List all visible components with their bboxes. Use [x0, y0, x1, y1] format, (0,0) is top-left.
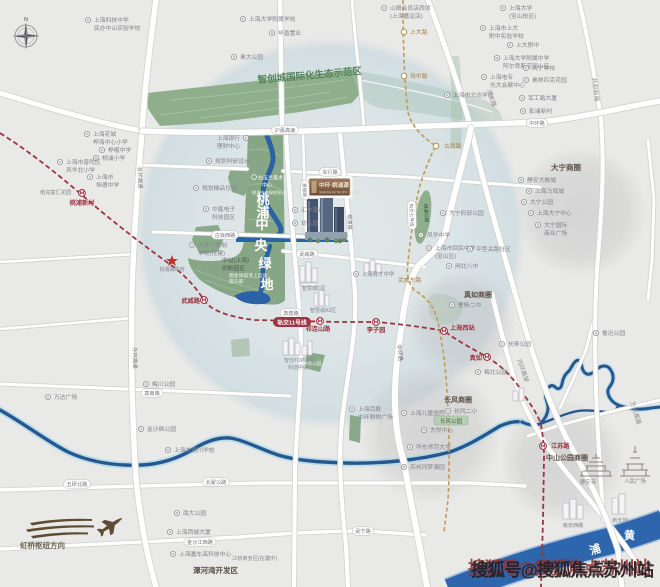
svg-text:上海育才中学: 上海育才中学: [362, 270, 395, 278]
svg-text:科技园区: 科技园区: [212, 213, 235, 221]
svg-text:N: N: [24, 17, 28, 23]
svg-text:附中实验学校: 附中实验学校: [489, 32, 524, 40]
svg-text:北翟公路: 北翟公路: [206, 478, 228, 486]
svg-text:鲁迅公园: 鲁迅公园: [602, 329, 625, 337]
svg-text:汇丰银行: 汇丰银行: [301, 206, 324, 214]
svg-text:江苏路: 江苏路: [551, 442, 570, 450]
svg-text:风华中学: 风华中学: [427, 231, 450, 239]
svg-text:彭浦新村: 彭浦新村: [529, 107, 552, 115]
svg-text:真如: 真如: [470, 354, 482, 362]
svg-text:民办中山实验学校: 民办中山实验学校: [94, 24, 141, 32]
svg-text:武威路: 武威路: [299, 250, 315, 258]
svg-text:新天地: 新天地: [612, 516, 628, 524]
svg-text:上海西站: 上海西站: [450, 324, 476, 332]
svg-text:大宁府邸公园: 大宁府邸公园: [449, 209, 484, 217]
svg-text:上海大学附属中学: 上海大学附属中学: [503, 54, 550, 62]
svg-text:大宁学校: 大宁学校: [532, 64, 555, 72]
svg-text:军工路大厦: 军工路大厦: [528, 94, 557, 102]
svg-text:恒德中学: 恒德中学: [96, 181, 119, 189]
svg-text:敦煌路: 敦煌路: [283, 309, 299, 317]
svg-text:桦海中心小学: 桦海中心小学: [93, 138, 128, 146]
svg-text:人民广场: 人民广场: [624, 477, 646, 485]
svg-text:中以(上海): 中以(上海): [222, 256, 249, 264]
svg-text:上海大学附属学校: 上海大学附属学校: [249, 15, 296, 23]
svg-text:潭河湾开发区: 潭河湾开发区: [193, 565, 238, 575]
svg-text:轨交11号线: 轨交11号线: [277, 319, 307, 327]
svg-text:南充富汇花园: 南充富汇花园: [40, 188, 71, 196]
svg-text:上海百联: 上海百联: [358, 405, 381, 413]
svg-text:中环路: 中环路: [529, 119, 545, 127]
svg-text:车行路: 车行路: [322, 168, 338, 176]
svg-text:长风公园: 长风公园: [440, 417, 463, 425]
svg-text:上海银行: 上海银行: [217, 134, 240, 142]
svg-text:静安大融城: 静安大融城: [527, 176, 556, 184]
svg-text:上海市文达学校: 上海市文达学校: [453, 91, 494, 99]
svg-text:地: 地: [260, 277, 273, 292]
svg-text:上海大学: 上海大学: [509, 4, 532, 12]
svg-text:武威东路: 武威东路: [398, 276, 421, 284]
svg-text:智慧城C区: 智慧城C区: [302, 285, 326, 292]
svg-text:祁连山路: 祁连山路: [306, 325, 332, 333]
svg-text:长寿公园: 长寿公园: [508, 340, 531, 348]
svg-text:上海市上大: 上海市上大: [489, 24, 518, 32]
svg-text:金沙江西路: 金沙江西路: [187, 538, 214, 546]
svg-text:大悦中心: 大悦中心: [430, 426, 453, 434]
svg-text:奥大公园: 奥大公园: [240, 53, 263, 61]
svg-text:上海市铜川学校: 上海市铜川学校: [174, 446, 215, 454]
svg-text:理财中心: 理财中心: [217, 142, 240, 150]
svg-text:五研北路: 五研北路: [67, 480, 89, 488]
svg-text:闸北八中: 闸北八中: [455, 262, 478, 270]
svg-text:中心: 中心: [262, 182, 272, 189]
svg-text:曹杨二中: 曹杨二中: [458, 301, 481, 309]
svg-text:上海花城: 上海花城: [93, 130, 116, 138]
svg-text:大宁公园: 大宁公园: [530, 198, 553, 206]
svg-text:上海西城大厦: 上海西城大厦: [176, 528, 211, 536]
svg-text:虹桥枢纽方向: 虹桥枢纽方向: [20, 540, 65, 550]
svg-text:上海科技中学: 上海科技中学: [94, 16, 129, 24]
svg-text:金沙枫公园: 金沙枫公园: [147, 425, 176, 433]
svg-text:大宁商圈: 大宁商圈: [551, 162, 581, 172]
svg-text:梅川公园: 梅川公园: [152, 380, 175, 388]
svg-text:学校(在建): 学校(在建): [198, 249, 225, 257]
svg-text:平型关路社区: 平型关路社区: [476, 245, 511, 253]
svg-text:绿: 绿: [258, 256, 272, 271]
svg-text:国金体操浪上运动: 国金体操浪上运动: [229, 272, 268, 279]
svg-text:上海马戏城: 上海马戏城: [535, 187, 564, 195]
svg-text:中鑫电子: 中鑫电子: [212, 205, 235, 213]
svg-text:古浪路: 古浪路: [444, 142, 462, 150]
svg-text:山姆会员店西郊: 山姆会员店西郊: [390, 4, 431, 12]
svg-text:奥林匹克花园: 奥林匹克花园: [532, 76, 567, 84]
svg-text:静安寺: 静安寺: [580, 478, 597, 486]
svg-text:规划精品住宅: 规划精品住宅: [202, 184, 237, 192]
svg-text:场中路: 场中路: [410, 72, 428, 80]
svg-text:(宝山区): (宝山区): [435, 252, 456, 260]
svg-text:规划科研设计: 规划科研设计: [215, 157, 250, 165]
svg-text:梅北公园: 梅北公园: [484, 368, 507, 376]
svg-text:李子园: 李子园: [366, 326, 386, 334]
svg-text:(上海嘉定店): (上海嘉定店): [390, 12, 423, 20]
svg-text:南大公园: 南大公园: [183, 509, 206, 517]
svg-text:桃浦小学: 桃浦小学: [102, 154, 125, 162]
svg-text:上海市: 上海市: [96, 173, 114, 181]
svg-text:风华北小学: 风华北小学: [66, 166, 95, 174]
svg-text:搜狐号@搜狐焦点苏州站: 搜狐号@搜狐焦点苏州站: [471, 560, 655, 580]
svg-text:白玉兰美术: 白玉兰美术: [258, 175, 283, 182]
svg-text:九年一贯制: 九年一贯制: [198, 241, 227, 249]
svg-text:大宁国际: 大宁国际: [544, 221, 567, 229]
svg-text:真如商圈: 真如商圈: [464, 290, 492, 299]
svg-text:桃浦中央绿地泵站: 桃浦中央绿地泵站: [252, 189, 286, 196]
svg-text:中: 中: [255, 217, 268, 232]
svg-text:(宝山校区): (宝山校区): [509, 12, 536, 20]
svg-text:黄: 黄: [624, 528, 635, 542]
svg-text:沪嘉高速: 沪嘉高速: [275, 126, 296, 134]
svg-text:俱乐部: 俱乐部: [229, 278, 244, 285]
svg-text:华东师范大学: 华东师范大学: [416, 443, 451, 451]
svg-text:上海电专: 上海电专: [490, 73, 513, 81]
svg-text:桦楷中学: 桦楷中学: [108, 146, 131, 154]
svg-text:毕直置业: 毕直置业: [278, 29, 301, 37]
svg-text:长风商圈: 长风商圈: [444, 395, 472, 404]
svg-text:央: 央: [254, 238, 268, 253]
svg-text:中环购物广场: 中环购物广场: [358, 413, 393, 421]
svg-text:中央公园: 中央公园: [303, 360, 322, 367]
svg-text:上海市普陀区: 上海市普陀区: [66, 158, 101, 166]
svg-text:古浪西路: 古浪西路: [215, 231, 237, 239]
svg-text:桃浦新村: 桃浦新村: [70, 199, 96, 207]
svg-text:智慧城A2区: 智慧城A2区: [310, 307, 336, 314]
svg-text:上海嘉车高科技中心: 上海嘉车高科技中心: [179, 550, 231, 558]
svg-text:武威路: 武威路: [181, 297, 200, 305]
svg-text:南京西路: 南京西路: [563, 521, 585, 529]
svg-text:江桥商务区(在建中): 江桥商务区(在建中): [232, 554, 277, 562]
svg-text:中山公园商圈: 中山公园商圈: [546, 453, 588, 462]
svg-text:光大会展中心: 光大会展中心: [490, 81, 525, 89]
svg-text:苏州河梦清园: 苏州河梦清园: [410, 463, 445, 471]
svg-text:武宁路: 武宁路: [355, 527, 371, 535]
svg-text:SHANGHAI TAOPU CENTER: SHANGHAI TAOPU CENTER: [319, 191, 362, 195]
svg-text:幼儿园: 幼儿园: [301, 219, 319, 227]
svg-text:上大附中: 上大附中: [516, 41, 539, 49]
svg-text:上海儿童医院: 上海儿童医院: [410, 409, 445, 417]
svg-text:商业广场: 商业广场: [544, 229, 567, 237]
svg-text:长风二小: 长风二小: [454, 407, 477, 415]
svg-text:桃浦镇政府: 桃浦镇政府: [159, 266, 184, 273]
svg-text:万达广场: 万达广场: [54, 393, 77, 401]
svg-text:创新园区: 创新园区: [222, 264, 245, 272]
svg-text:中环·桃浦源: 中环·桃浦源: [319, 181, 349, 189]
svg-text:上海大宁中心: 上海大宁中心: [537, 209, 572, 217]
svg-text:真南路: 真南路: [144, 389, 160, 397]
svg-text:上大路: 上大路: [410, 28, 428, 36]
